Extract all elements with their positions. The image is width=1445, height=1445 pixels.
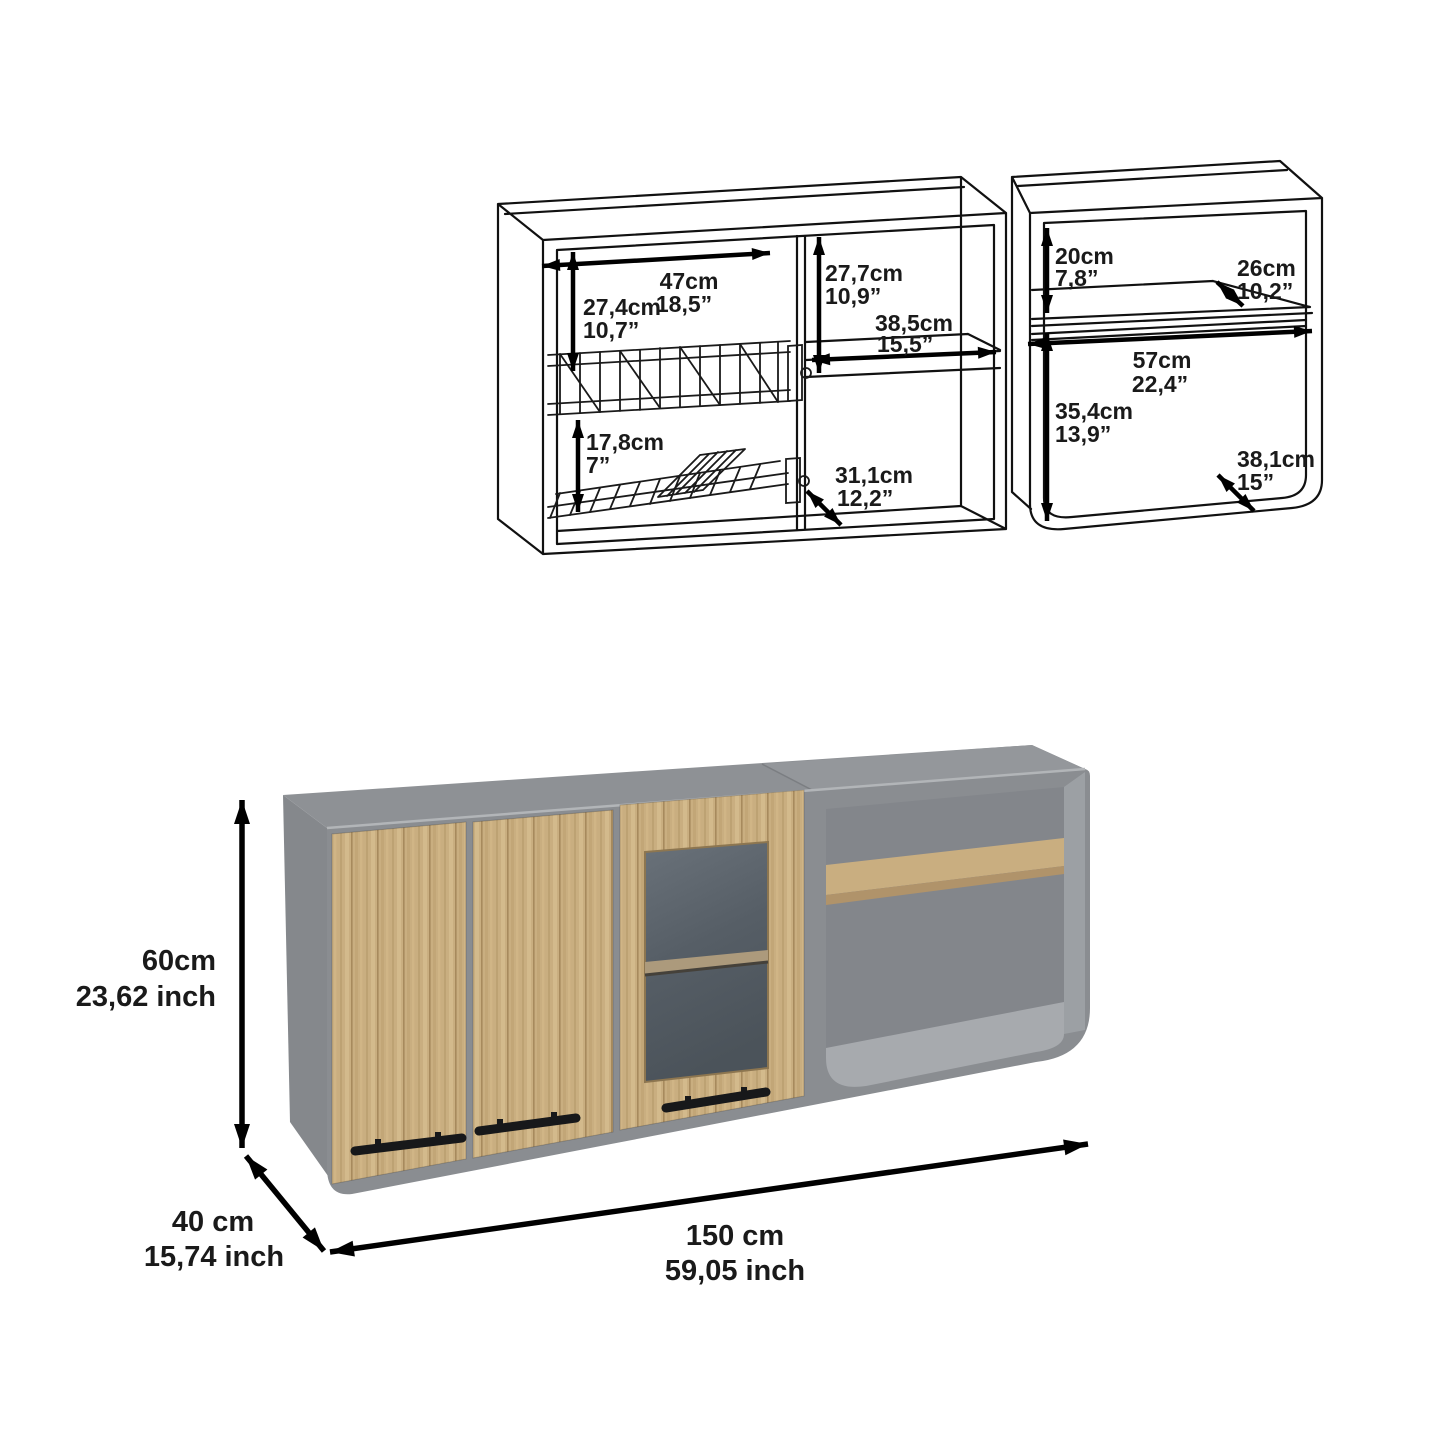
label-depth-in: 15,74 inch — [144, 1241, 284, 1273]
product-dimension-sheet: 47cm 18,5” 27,4cm 10,7” 17,8cm 7” 27,7cm… — [0, 0, 1445, 1445]
cabinet-render: 60cm 23,62 inch 40 cm 15,74 inch 150 cm … — [76, 745, 1090, 1287]
dim-arrow-depth — [246, 1156, 324, 1251]
label-right-width-in: 22,4” — [1132, 371, 1188, 397]
label-lower-height-in: 13,9” — [1055, 421, 1111, 447]
dimension-diagram: 47cm 18,5” 27,4cm 10,7” 17,8cm 7” 27,7cm… — [498, 161, 1322, 554]
label-right-width-cm: 57cm — [1133, 347, 1192, 373]
label-top-height-in: 7,8” — [1055, 265, 1098, 291]
upper-dish-rack — [548, 341, 811, 415]
door-glass — [620, 790, 804, 1130]
label-height-cm: 60cm — [142, 945, 216, 977]
unit-right-wall — [1064, 772, 1085, 1034]
open-shelf-unit — [826, 772, 1085, 1087]
dim-arrow-mid-depth — [807, 491, 841, 525]
label-mid-height-in: 10,9” — [825, 283, 881, 309]
dimension-sheet-canvas: 47cm 18,5” 27,4cm 10,7” 17,8cm 7” 27,7cm… — [0, 0, 1445, 1445]
label-height-in: 23,62 inch — [76, 981, 216, 1013]
cabinet-left-side — [283, 795, 333, 1183]
label-depth-cm: 40 cm — [172, 1206, 254, 1238]
diagram-right-cabinet — [1012, 161, 1322, 529]
label-mid-depth-in: 12,2” — [837, 485, 893, 511]
door-left — [332, 822, 466, 1184]
dim-arrow-interior-width — [542, 253, 770, 266]
label-rack-spacing-in: 7” — [586, 452, 610, 478]
label-interior-width-in: 18,5” — [656, 291, 712, 317]
label-width-in: 59,05 inch — [665, 1255, 805, 1287]
label-width-cm: 150 cm — [686, 1220, 784, 1252]
label-shelf-depth-in: 10,2” — [1237, 278, 1293, 304]
label-right-depth-in: 15” — [1237, 469, 1274, 495]
label-upper-height-in: 10,7” — [583, 317, 639, 343]
label-mid-width-in: 15,5” — [877, 331, 933, 357]
right-cabinet-outline — [1012, 161, 1322, 529]
door-middle — [473, 810, 613, 1158]
